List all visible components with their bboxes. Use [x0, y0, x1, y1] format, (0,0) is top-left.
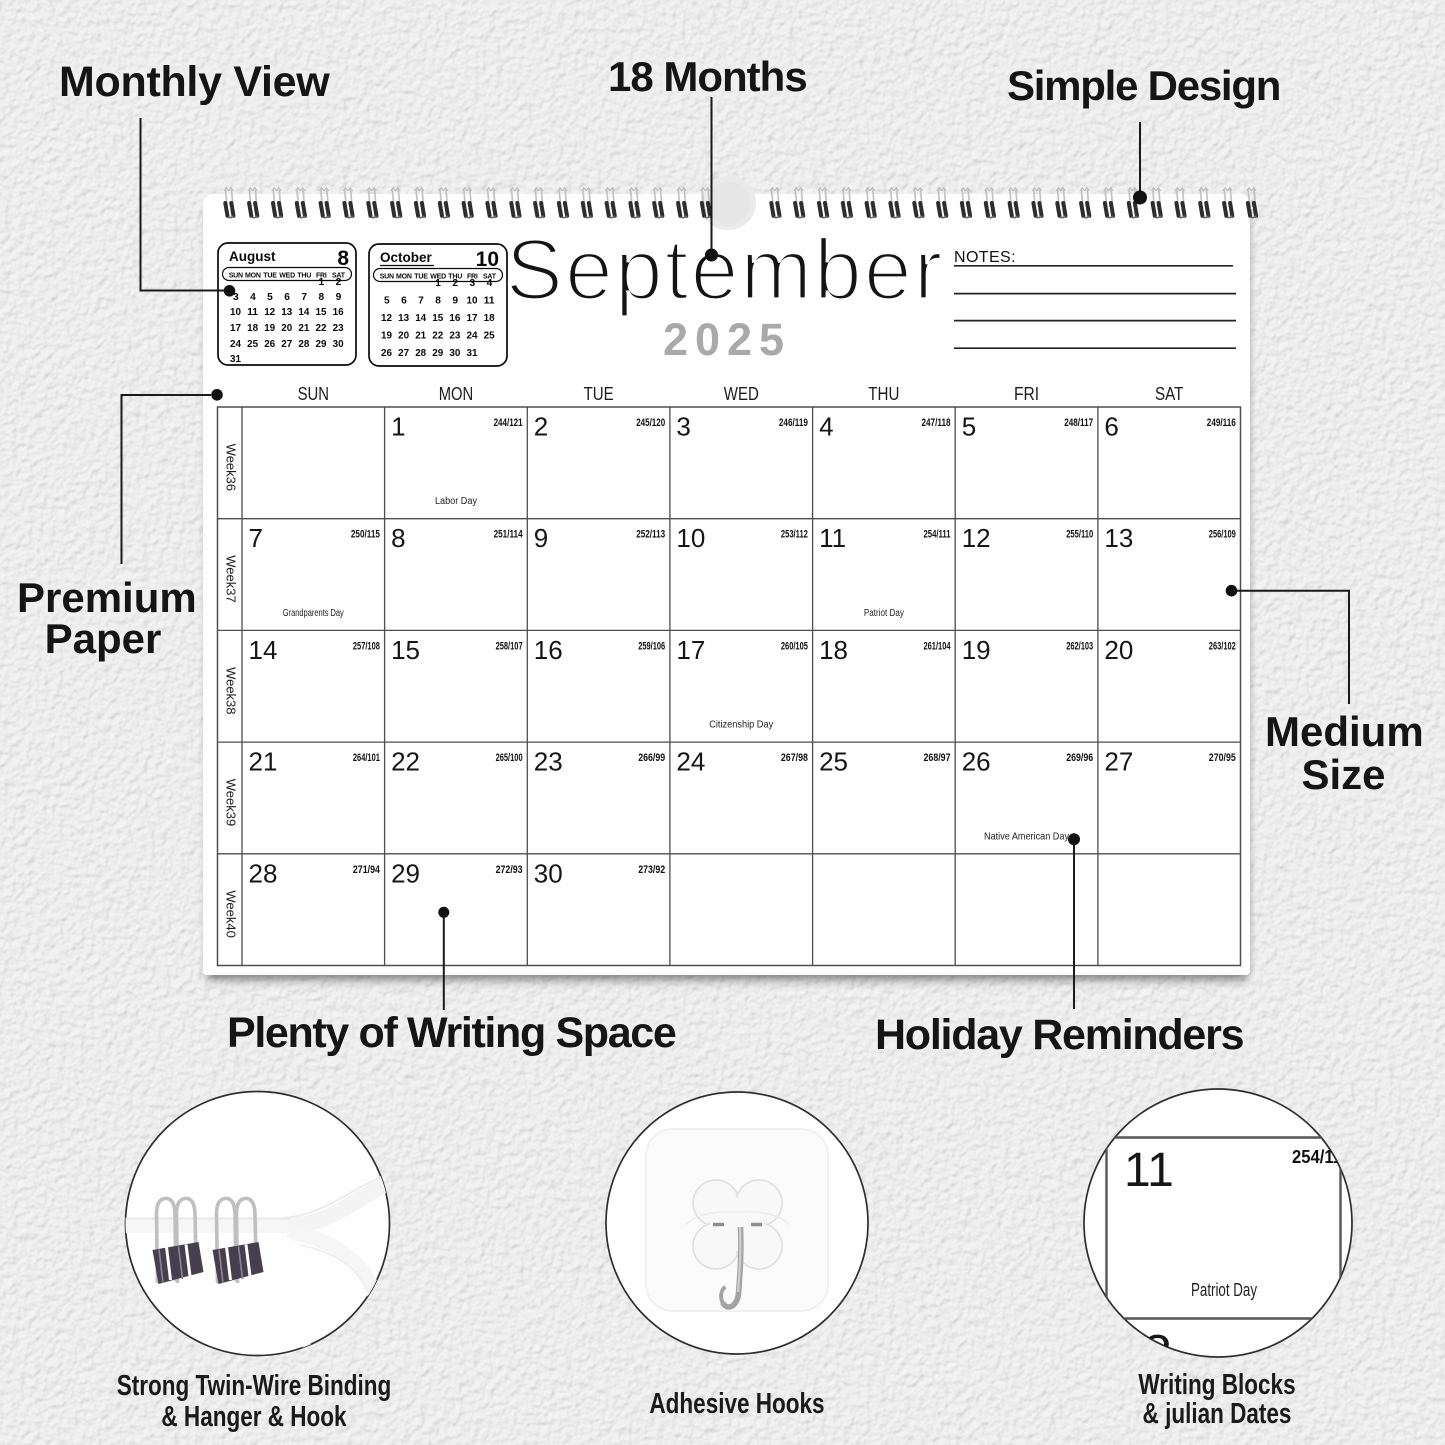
svg-text:Patriot Day: Patriot Day [1191, 1279, 1258, 1300]
svg-text:11: 11 [1124, 1144, 1174, 1197]
svg-text:254/11: 254/11 [1292, 1147, 1342, 1167]
